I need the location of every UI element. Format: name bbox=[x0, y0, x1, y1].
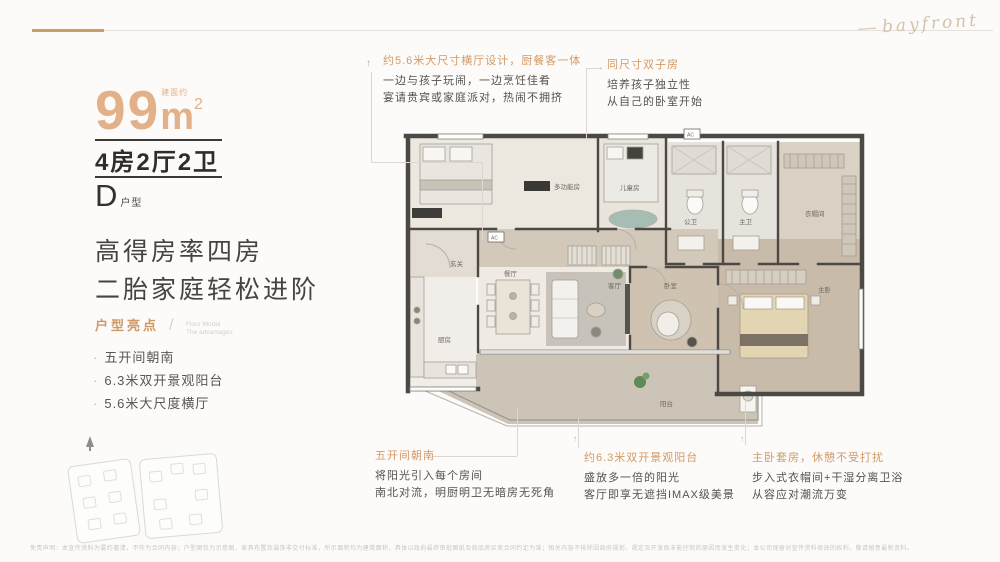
room-label-kitchen: 厨房 bbox=[438, 335, 451, 344]
keyplan-unit bbox=[189, 513, 203, 525]
room-label-multi: 多功能房 bbox=[554, 182, 580, 191]
callout-line2: 客厅即享无遮挡IMAX级美景 bbox=[584, 487, 735, 504]
callout-line1: 步入式衣帽间+干湿分离卫浴 bbox=[752, 470, 903, 487]
keyplan-block-b bbox=[139, 453, 224, 539]
callout-arrow-icon: ↑ bbox=[740, 434, 744, 443]
keyplan-unit bbox=[87, 518, 101, 531]
callout-top-left: 约5.6米大尺寸横厅设计，厨餐客一体 一边与孩子玩闹，一边烹饪佳肴 宴请贵宾或家… bbox=[383, 52, 581, 107]
callout-arrow-icon: ↑ bbox=[366, 58, 371, 69]
area-unit-wrap: 建面约m bbox=[160, 96, 194, 138]
ac-label: AC bbox=[687, 133, 694, 139]
keyplan-unit bbox=[113, 512, 127, 525]
callout-line bbox=[482, 162, 483, 240]
keyplan-unit bbox=[108, 491, 122, 504]
area-unit: m bbox=[160, 96, 194, 138]
keyplan-unit bbox=[195, 489, 209, 501]
poster-canvas: bayfront 99建面约m2 4房2厅2卫 D户型 高得房率四房 二胎家庭轻… bbox=[0, 0, 1000, 562]
callout-line1: 盛放多一倍的阳光 bbox=[584, 470, 735, 487]
north-arrow-icon bbox=[86, 436, 94, 447]
disclaimer: 免责声明：本宣传资料为要约邀请，不作为合同内容；户型图仅为示意图，家具布置及装饰… bbox=[30, 543, 990, 552]
room-label-master: 主卧 bbox=[818, 285, 832, 294]
callout-title: 约5.6米大尺寸横厅设计，厨餐客一体 bbox=[383, 52, 581, 68]
callout-line2: 南北对流，明厨明卫无暗房无死角 bbox=[375, 485, 555, 502]
callout-line bbox=[371, 162, 482, 163]
callout-title: 主卧套房，休憩不受打扰 bbox=[752, 449, 903, 465]
keyplan-unit bbox=[103, 469, 117, 482]
top-rule-accent bbox=[32, 29, 104, 32]
room-label-living: 客厅 bbox=[608, 281, 622, 290]
headline-line1: 高得房率四房 bbox=[95, 233, 319, 271]
headline: 高得房率四房 二胎家庭轻松进阶 bbox=[95, 233, 319, 309]
area-superscript: 2 bbox=[194, 96, 203, 113]
highlights-title: 户型亮点 bbox=[95, 315, 176, 335]
callout-line1: 培养孩子独立性 bbox=[607, 77, 703, 94]
unit-type-suffix: 户型 bbox=[120, 198, 142, 209]
callout-title: 同尺寸双子房 bbox=[607, 56, 703, 72]
headline-line2: 二胎家庭轻松进阶 bbox=[95, 271, 319, 309]
keyplan-unit bbox=[159, 518, 173, 530]
callout-line1: 将阳光引入每个房间 bbox=[375, 468, 555, 485]
building-keyplan-sketch bbox=[64, 430, 224, 535]
callout-top-right: 同尺寸双子房 培养孩子独立性 从自己的卧室开始 bbox=[607, 56, 703, 111]
ac-label: AC bbox=[491, 236, 498, 242]
bullet-item: 五开间朝南 bbox=[93, 346, 223, 369]
logo-text: bayfront bbox=[881, 10, 979, 37]
room-label-entry: 玄关 bbox=[450, 259, 464, 268]
bullet-item: 6.3米双开景观阳台 bbox=[93, 369, 223, 392]
room-label-bedroom2: 卧室 bbox=[664, 281, 678, 290]
label-box bbox=[524, 181, 550, 191]
keyplan-unit bbox=[149, 471, 163, 483]
callout-bottom-left: 五开间朝南 将阳光引入每个房间 南北对流，明厨明卫无暗房无死角 bbox=[375, 447, 555, 502]
callout-line bbox=[578, 418, 579, 448]
room-label-balcony: 阳台 bbox=[660, 399, 673, 408]
room-entry-floor bbox=[410, 231, 478, 277]
callout-line bbox=[371, 72, 372, 162]
logo-dash-icon bbox=[858, 28, 876, 30]
area-prefix: 建面约 bbox=[161, 87, 188, 98]
highlights-subtitle: Floor Model The advantages bbox=[186, 321, 233, 337]
layout-text: 4房2厅2卫 bbox=[95, 142, 219, 177]
room-label-closet: 衣帽间 bbox=[805, 209, 825, 218]
floorplan-drawing: AC AC 多功能房 儿童房 公卫 主卫 衣帽间 玄关 厨房 餐厅 客厅 卧室 … bbox=[368, 124, 878, 434]
callout-arrow-icon: ↑ bbox=[573, 434, 577, 443]
highlights-sub2: The advantages bbox=[186, 329, 233, 337]
callout-line2: 从容应对潮流万变 bbox=[752, 487, 903, 504]
bullet-item: 5.6米大尺度横厅 bbox=[93, 392, 223, 415]
highlights-sub1: Floor Model bbox=[186, 321, 233, 329]
callout-bottom-right: 主卧套房，休憩不受打扰 步入式衣帽间+干湿分离卫浴 从容应对潮流万变 bbox=[752, 449, 903, 504]
callout-line1: 一边与孩子玩闹，一边烹饪佳肴 bbox=[383, 73, 581, 90]
keyplan-unit bbox=[77, 475, 91, 488]
unit-type: D户型 bbox=[95, 178, 142, 214]
area-number: 99 bbox=[95, 79, 160, 141]
callout-line bbox=[745, 400, 746, 445]
keyplan-unit bbox=[170, 463, 184, 475]
room-label-kids: 儿童房 bbox=[620, 183, 640, 192]
callout-title: 五开间朝南 bbox=[375, 447, 555, 463]
room-label-dining: 餐厅 bbox=[504, 269, 518, 278]
keyplan-unit bbox=[82, 496, 96, 509]
room-label-bath-master: 主卫 bbox=[739, 217, 753, 226]
keyplan-unit bbox=[153, 498, 167, 510]
callout-title: 约6.3米双开景观阳台 bbox=[584, 449, 735, 465]
brand-script-logo: bayfront bbox=[857, 9, 998, 39]
callout-line2: 宴请贵宾或家庭派对，热闹不拥挤 bbox=[383, 90, 581, 107]
unit-type-letter: D bbox=[95, 178, 117, 213]
callout-bottom-middle: 约6.3米双开景观阳台 盛放多一倍的阳光 客厅即享无遮挡IMAX级美景 bbox=[584, 449, 735, 504]
callout-line bbox=[586, 68, 587, 140]
keyplan-unit bbox=[192, 463, 206, 475]
highlight-bullets: 五开间朝南 6.3米双开景观阳台 5.6米大尺度横厅 bbox=[93, 346, 223, 415]
callout-arrow-icon: → bbox=[594, 62, 604, 73]
callout-line2: 从自己的卧室开始 bbox=[607, 94, 703, 111]
keyplan-block-a bbox=[67, 458, 141, 544]
divider-line-1 bbox=[95, 139, 222, 141]
area-block: 99建面约m2 bbox=[95, 82, 203, 139]
room-label-bath-public: 公卫 bbox=[684, 218, 698, 226]
